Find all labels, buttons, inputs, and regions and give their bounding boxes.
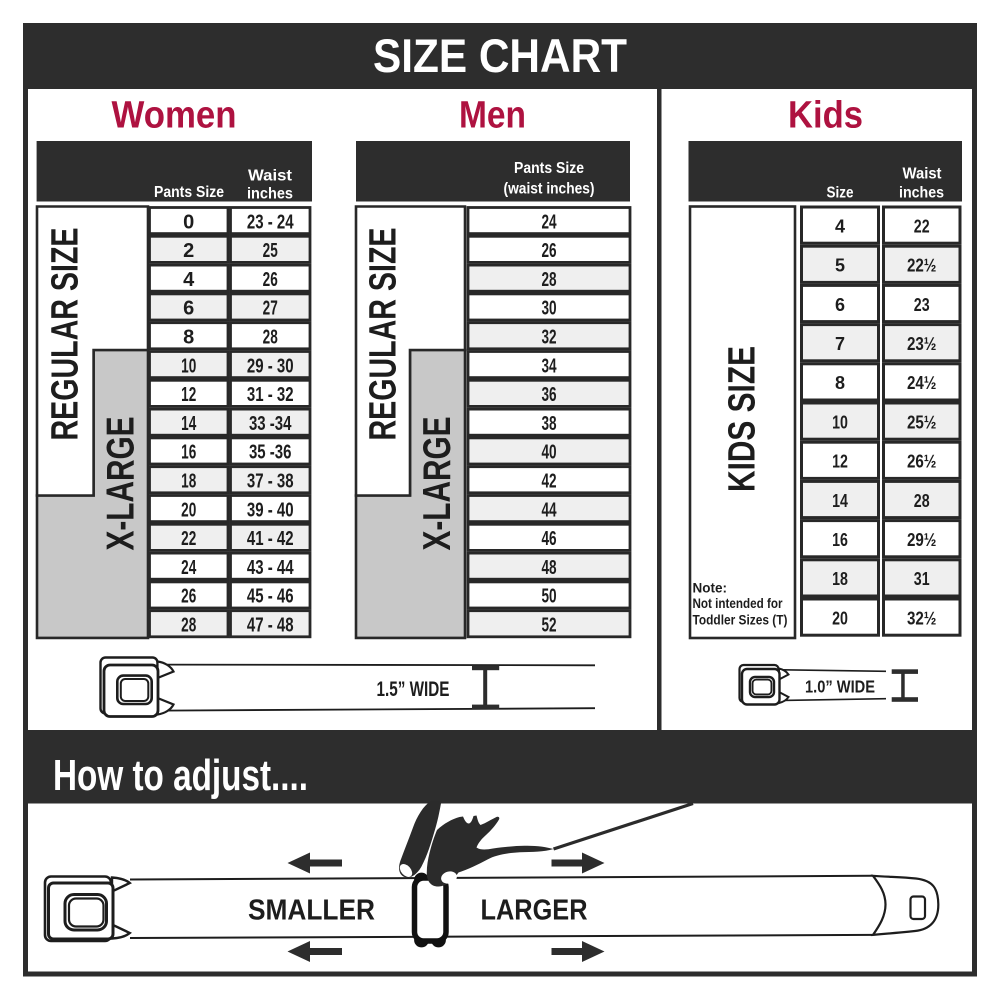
svg-text:2: 2 (183, 240, 194, 262)
svg-text:42: 42 (541, 471, 556, 493)
svg-text:1.0” WIDE: 1.0” WIDE (805, 677, 875, 697)
svg-text:26½: 26½ (907, 452, 937, 472)
svg-text:How to adjust....: How to adjust.... (53, 751, 308, 800)
svg-text:5: 5 (835, 256, 845, 276)
svg-text:10: 10 (181, 355, 196, 377)
svg-text:24: 24 (181, 557, 197, 579)
svg-text:(waist inches): (waist inches) (504, 181, 595, 198)
svg-text:SMALLER: SMALLER (248, 895, 375, 927)
svg-text:41 - 42: 41 - 42 (247, 528, 294, 550)
svg-text:25½: 25½ (907, 412, 937, 432)
svg-text:Kids: Kids (788, 95, 863, 137)
svg-text:Size: Size (827, 185, 854, 202)
svg-text:Not intended for: Not intended for (693, 596, 784, 611)
svg-text:46: 46 (541, 528, 556, 550)
svg-text:39 - 40: 39 - 40 (247, 499, 294, 521)
svg-text:29 - 30: 29 - 30 (247, 355, 294, 377)
svg-text:1.5” WIDE: 1.5” WIDE (377, 678, 450, 701)
svg-text:37 - 38: 37 - 38 (247, 471, 294, 493)
svg-text:18: 18 (181, 471, 196, 493)
svg-text:28: 28 (914, 491, 930, 511)
svg-text:Waist: Waist (248, 168, 293, 185)
svg-text:23: 23 (914, 295, 930, 315)
svg-text:REGULAR SIZE: REGULAR SIZE (44, 227, 86, 440)
svg-text:24: 24 (541, 211, 557, 233)
svg-text:Note:: Note: (693, 581, 728, 596)
svg-text:4: 4 (183, 269, 195, 291)
svg-text:Women: Women (112, 95, 237, 137)
svg-text:28: 28 (541, 269, 556, 291)
svg-text:REGULAR SIZE: REGULAR SIZE (363, 228, 405, 441)
svg-text:43 - 44: 43 - 44 (247, 557, 294, 579)
svg-text:26: 26 (263, 269, 278, 291)
svg-text:18: 18 (832, 569, 848, 589)
svg-text:12: 12 (832, 452, 848, 472)
svg-text:45 - 46: 45 - 46 (247, 586, 294, 608)
svg-text:44: 44 (541, 499, 557, 521)
svg-text:SIZE CHART: SIZE CHART (373, 29, 627, 82)
svg-text:4: 4 (835, 216, 845, 236)
svg-text:Waist: Waist (903, 166, 943, 183)
svg-text:20: 20 (181, 499, 196, 521)
svg-text:inches: inches (247, 186, 293, 203)
svg-text:31 - 32: 31 - 32 (247, 384, 294, 406)
svg-text:Pants Size: Pants Size (514, 160, 584, 177)
svg-text:34: 34 (541, 355, 557, 377)
svg-text:48: 48 (541, 557, 556, 579)
svg-text:16: 16 (832, 530, 848, 550)
svg-text:14: 14 (181, 413, 197, 435)
svg-text:27: 27 (263, 298, 278, 320)
svg-text:8: 8 (183, 327, 194, 349)
svg-text:Pants Size: Pants Size (154, 184, 224, 201)
svg-text:7: 7 (835, 334, 845, 354)
svg-text:31: 31 (914, 569, 930, 589)
svg-text:14: 14 (832, 491, 848, 511)
svg-text:28: 28 (263, 327, 278, 349)
svg-text:20: 20 (832, 608, 848, 628)
svg-text:35 -36: 35 -36 (249, 442, 292, 464)
svg-text:29½: 29½ (907, 530, 937, 550)
svg-text:8: 8 (835, 373, 845, 393)
svg-text:12: 12 (181, 384, 196, 406)
svg-text:38: 38 (541, 413, 556, 435)
svg-text:28: 28 (181, 615, 196, 637)
svg-text:KIDS SIZE: KIDS SIZE (722, 346, 764, 492)
svg-text:32: 32 (541, 327, 556, 349)
svg-text:16: 16 (181, 442, 196, 464)
svg-text:X-LARGE: X-LARGE (416, 417, 459, 551)
svg-text:Toddler Sizes (T): Toddler Sizes (T) (693, 613, 788, 628)
svg-text:30: 30 (541, 298, 556, 320)
svg-text:X-LARGE: X-LARGE (100, 417, 143, 551)
svg-text:26: 26 (181, 586, 196, 608)
svg-text:22: 22 (181, 528, 196, 550)
svg-text:Men: Men (459, 95, 526, 137)
svg-text:52: 52 (541, 615, 556, 637)
svg-text:6: 6 (835, 295, 845, 315)
svg-text:32½: 32½ (907, 608, 937, 628)
svg-text:26: 26 (541, 240, 556, 262)
svg-text:10: 10 (832, 412, 848, 432)
svg-text:36: 36 (541, 384, 556, 406)
svg-text:inches: inches (899, 185, 944, 202)
svg-text:6: 6 (183, 298, 194, 320)
svg-text:0: 0 (183, 211, 194, 233)
svg-text:23 - 24: 23 - 24 (247, 211, 294, 233)
svg-text:40: 40 (541, 442, 556, 464)
svg-text:LARGER: LARGER (481, 895, 588, 927)
svg-text:22½: 22½ (907, 256, 937, 276)
svg-text:23½: 23½ (907, 334, 937, 354)
svg-text:24½: 24½ (907, 373, 937, 393)
svg-text:47 - 48: 47 - 48 (247, 615, 294, 637)
svg-text:25: 25 (263, 240, 278, 262)
svg-text:33 -34: 33 -34 (249, 413, 292, 435)
svg-text:22: 22 (914, 216, 930, 236)
svg-text:50: 50 (541, 586, 556, 608)
